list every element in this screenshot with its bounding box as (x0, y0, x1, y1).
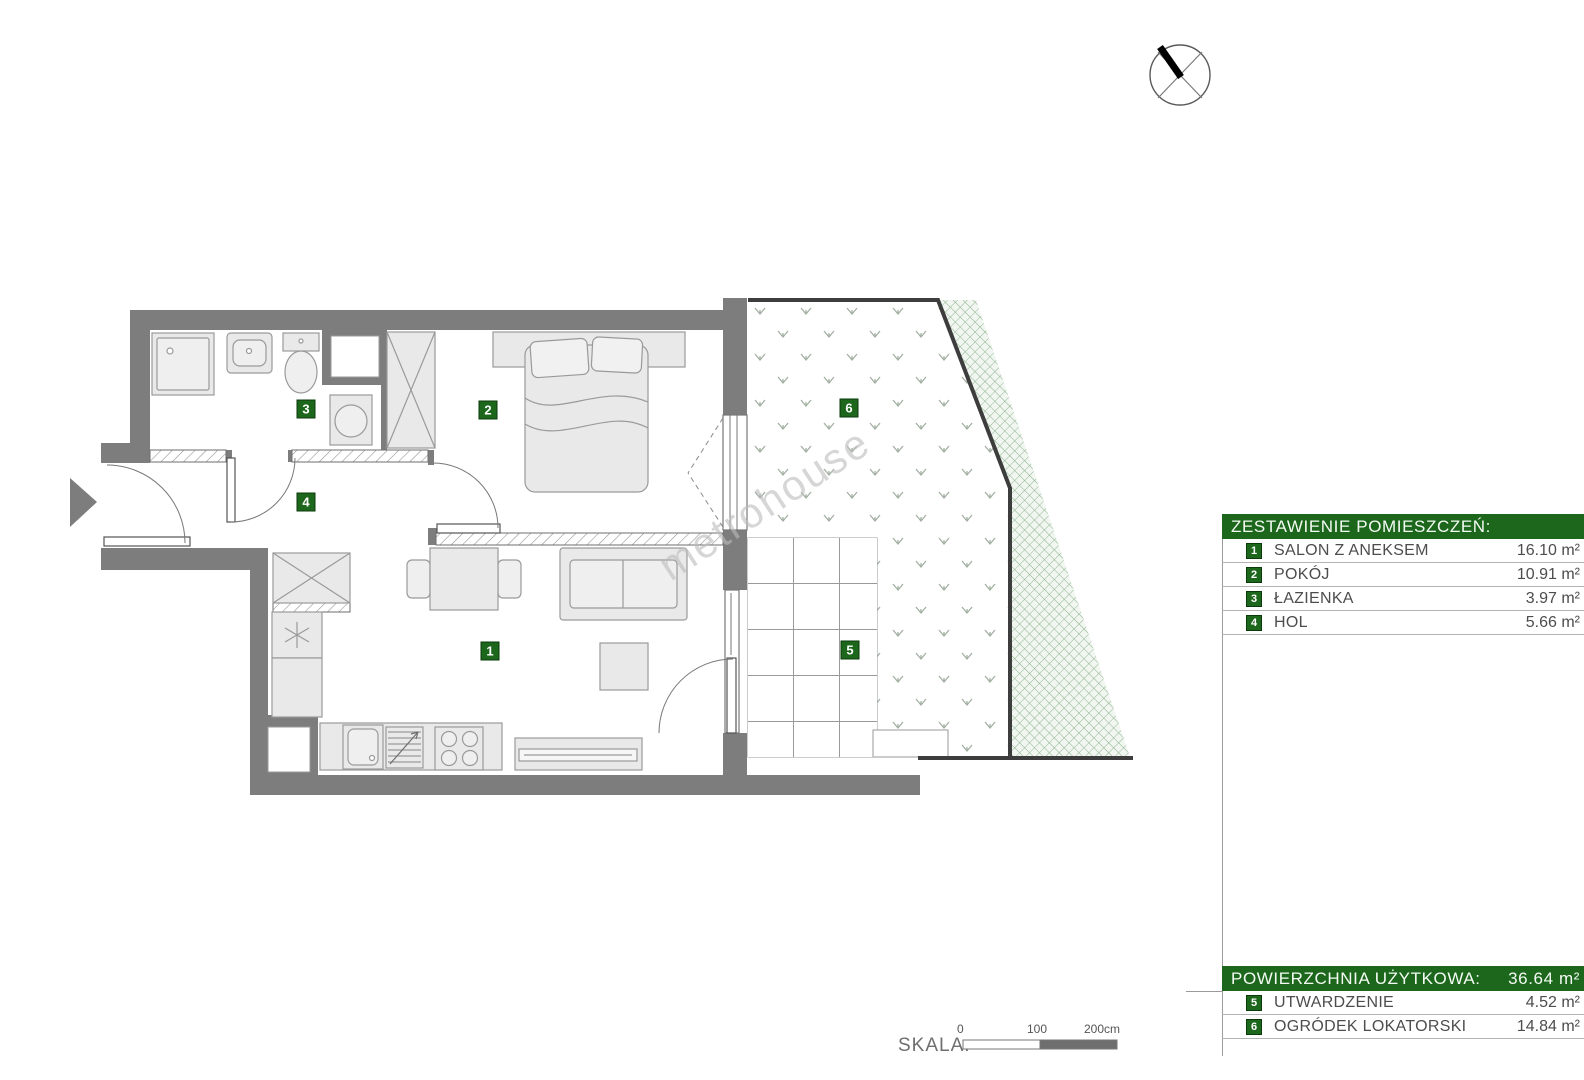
tv-cabinet-icon (515, 738, 642, 770)
room-area: 14.84 m² (1517, 1018, 1584, 1036)
svg-text:3: 3 (302, 402, 309, 417)
room-label: UTWARDZENIE (1274, 994, 1394, 1012)
room-list-table: ZESTAWIENIE POMIESZCZEŃ: 1 SALON Z ANEKS… (1222, 514, 1584, 635)
bedroom-door (433, 463, 500, 533)
scale-tick-100: 100 (1027, 1022, 1047, 1036)
coffee-table-icon (600, 643, 648, 690)
row-badge: 4 (1246, 615, 1262, 631)
room-badge-4: 4 (297, 493, 315, 511)
washing-machine-icon (330, 395, 372, 445)
hall-cabinet-icon (273, 553, 350, 603)
svg-text:5: 5 (846, 643, 853, 658)
room-label: HOL (1274, 614, 1308, 632)
usable-area-total: 36.64 m² (1508, 969, 1580, 989)
scale-tick-0: 0 (957, 1022, 964, 1036)
row-badge: 5 (1246, 995, 1262, 1011)
wardrobe-icon (387, 332, 435, 448)
room-label: POKÓJ (1274, 566, 1330, 584)
toilet-icon (283, 333, 319, 393)
room-badge-6: 6 (840, 399, 858, 417)
table-row: 4 HOL 5.66 m² (1222, 611, 1584, 635)
room-list-title: ZESTAWIENIE POMIESZCZEŃ: (1231, 517, 1491, 537)
dining-table-icon (407, 548, 521, 610)
room-area: 16.10 m² (1517, 542, 1584, 560)
table-row: 5 UTWARDZENIE 4.52 m² (1222, 991, 1584, 1015)
row-badge: 6 (1246, 1019, 1262, 1035)
bed-icon (493, 332, 685, 492)
svg-text:2: 2 (484, 403, 491, 418)
kitchen-shaft (268, 727, 310, 772)
room-badge-5: 5 (841, 641, 859, 659)
usable-area-title: POWIERZCHNIA UŻYTKOWA: (1231, 969, 1481, 989)
room-list-header: ZESTAWIENIE POMIESZCZEŃ: (1222, 514, 1584, 539)
room-badge-1: 1 (481, 642, 499, 660)
row-badge: 2 (1246, 567, 1262, 583)
room-badge-3: 3 (297, 400, 315, 418)
table-tick-line (1186, 991, 1222, 992)
room-label: ŁAZIENKA (1274, 590, 1354, 608)
scale-label: SKALA: (898, 1035, 971, 1056)
table-row: 3 ŁAZIENKA 3.97 m² (1222, 587, 1584, 611)
scale-tick-200: 200cm (1084, 1022, 1120, 1036)
row-badge: 1 (1246, 543, 1262, 559)
scale-bar: SKALA: 0 100 200cm (898, 1022, 1120, 1056)
svg-text:6: 6 (845, 401, 852, 416)
terrace-notch (873, 730, 948, 757)
compass-icon (1150, 45, 1210, 105)
entrance-door (104, 465, 190, 546)
table-row: 1 SALON Z ANEKSEM 16.10 m² (1222, 539, 1584, 563)
kitchen-counter-icon (320, 723, 502, 770)
row-badge: 3 (1246, 591, 1262, 607)
kitchen-cabinet-icon (272, 658, 322, 717)
fridge-icon (272, 612, 322, 658)
svg-text:4: 4 (302, 495, 310, 510)
room-area: 4.52 m² (1526, 994, 1584, 1012)
bathroom-sink-icon (227, 333, 272, 373)
room-label: SALON Z ANEKSEM (1274, 542, 1429, 560)
usable-area-table: POWIERZCHNIA UŻYTKOWA: 36.64 m² 5 UTWARD… (1222, 966, 1584, 1039)
table-row: 2 POKÓJ 10.91 m² (1222, 563, 1584, 587)
bathroom-door (227, 458, 295, 522)
room-area: 5.66 m² (1526, 614, 1584, 632)
floor-plan-page: metrohouse 1 2 3 4 5 6 (0, 0, 1584, 1080)
svg-text:1: 1 (486, 644, 493, 659)
room-area: 10.91 m² (1517, 566, 1584, 584)
room-area: 3.97 m² (1526, 590, 1584, 608)
bathroom-shaft (331, 336, 379, 377)
table-row: 6 OGRÓDEK LOKATORSKI 14.84 m² (1222, 1015, 1584, 1039)
room-badge-2: 2 (479, 401, 497, 419)
room-label: OGRÓDEK LOKATORSKI (1274, 1018, 1466, 1036)
shower-icon (152, 333, 214, 395)
entrance-arrow-icon (70, 478, 97, 527)
usable-area-header: POWIERZCHNIA UŻYTKOWA: 36.64 m² (1222, 966, 1584, 991)
